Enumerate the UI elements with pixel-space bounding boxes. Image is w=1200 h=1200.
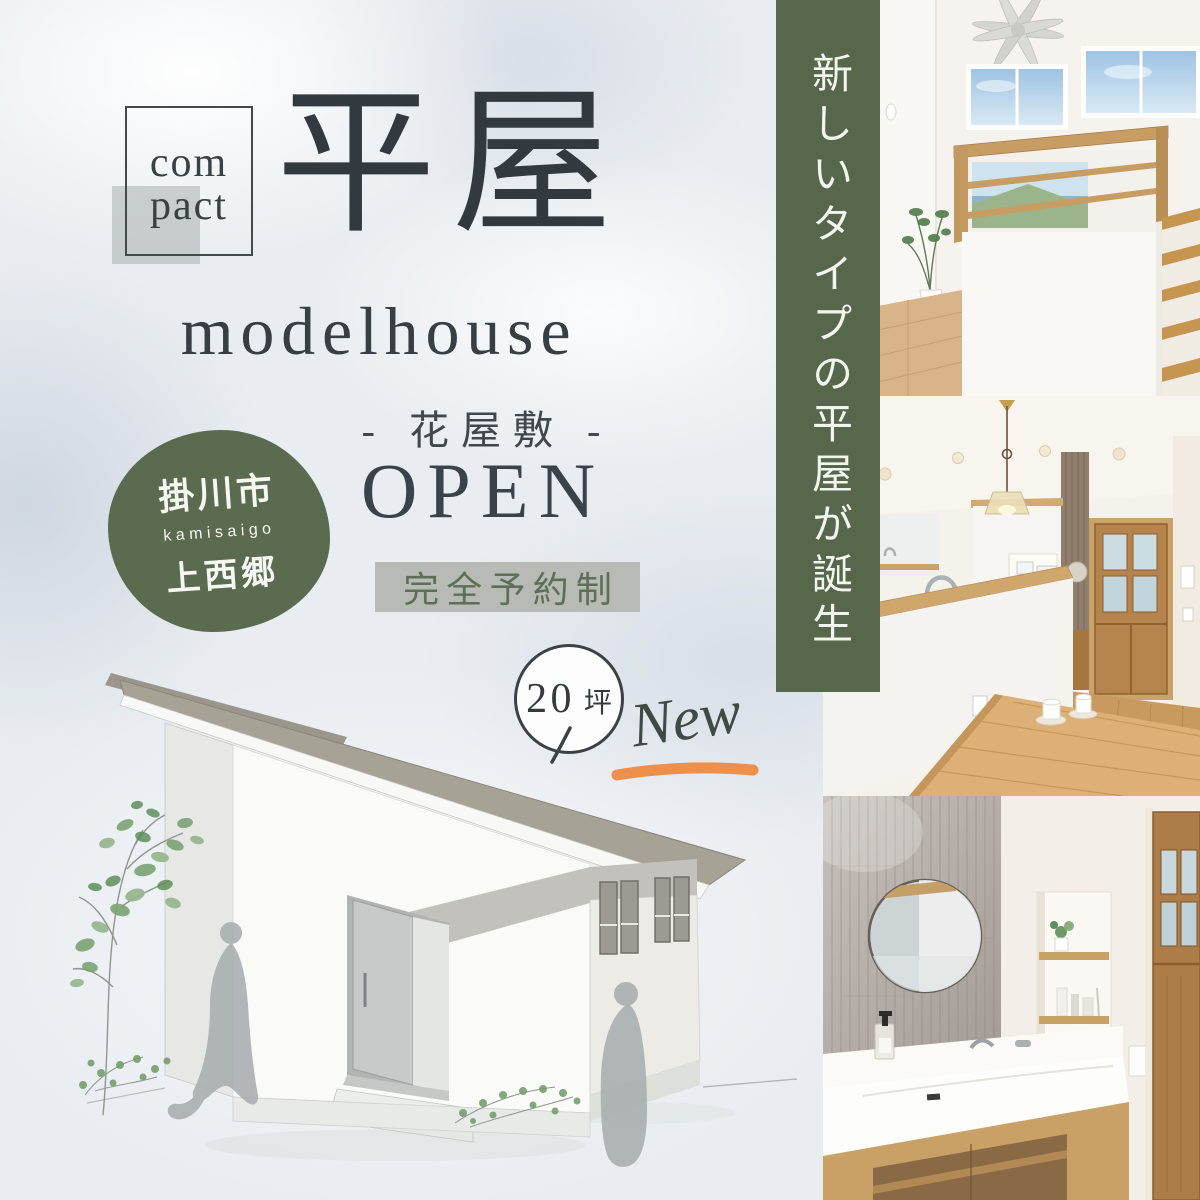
compact-line1: com: [150, 142, 228, 185]
wood-floor: [878, 290, 962, 396]
tick-mark: [544, 724, 578, 766]
loft-half-wall: [962, 232, 1168, 396]
wooden-door-edge: [1145, 808, 1200, 1200]
location-city: 掛川市: [156, 461, 276, 521]
compact-badge: com pact: [125, 106, 253, 256]
title-kanji: 平屋: [276, 80, 628, 248]
shelf: [1039, 1016, 1109, 1024]
light-switch: [1129, 1046, 1147, 1076]
niche-shelves: [1037, 892, 1111, 1034]
side-banner-text: 新しいタイプの平屋が誕生: [808, 52, 849, 692]
photo-washroom-vanity: [823, 796, 1200, 1200]
location-badge: 掛川市 kamisaigo 上西郷: [108, 430, 330, 632]
control-panel: [1017, 562, 1033, 574]
entrance-door: [353, 900, 413, 1085]
glass-paned-door: [1089, 518, 1173, 700]
location-district: 上西郷: [162, 544, 282, 601]
reservation-label: 完全予約制: [396, 561, 619, 613]
compact-line2: pact: [150, 185, 228, 228]
high-window-right: [1081, 46, 1200, 118]
stairs: [1162, 208, 1200, 396]
photo-loft-interior: [878, 0, 1200, 396]
poster-canvas: 新しいタイプの平屋が誕生 com pact 平屋 modelhouse - 花屋…: [0, 0, 1200, 1200]
faucet-handle: [1015, 1040, 1031, 1047]
new-underline: [610, 758, 760, 784]
shelf: [1039, 952, 1109, 960]
ground-line: [703, 1079, 797, 1087]
wall-panel: [1181, 566, 1194, 588]
reservation-band: 完全予約制: [375, 562, 640, 612]
title-latin: modelhouse: [79, 292, 679, 371]
side-banner: 新しいタイプの平屋が誕生: [776, 0, 880, 692]
high-window-left: [966, 64, 1068, 130]
area-value: 20: [526, 675, 575, 723]
wall-sconce: [886, 104, 896, 120]
location-romaji: kamisaigo: [160, 520, 278, 546]
